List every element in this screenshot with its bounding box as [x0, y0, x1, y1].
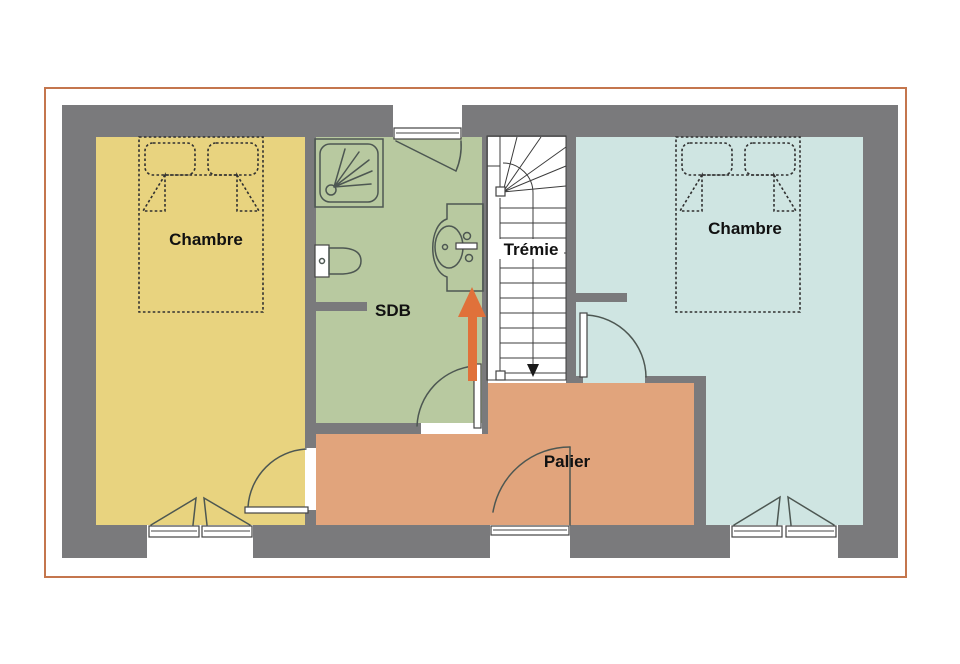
bedroom-left-floor: [96, 137, 305, 525]
wall-stairs-bedroomright: [566, 135, 576, 383]
stair-newel-bottom: [496, 371, 505, 380]
label-bathroom: SDB: [375, 301, 411, 320]
floor-plan-page: Chambre Chambre SDB Trémie Palier: [0, 0, 960, 664]
landing-floor-upper: [488, 383, 694, 434]
door-leaf: [580, 313, 587, 377]
bathroom-floor: [316, 137, 482, 423]
label-bedroom-right: Chambre: [708, 219, 782, 238]
wall-landing-bedroomright: [694, 376, 706, 525]
landing-floor: [316, 434, 694, 525]
floor-plan-drawing: Chambre Chambre SDB Trémie Palier: [0, 0, 960, 664]
label-bedroom-left: Chambre: [169, 230, 243, 249]
stair-newel-top: [496, 187, 505, 196]
wall-bedroomright-stub: [576, 293, 627, 302]
wall-bathroom-stub: [316, 302, 367, 311]
door-leaf: [245, 507, 308, 513]
label-stairwell: Trémie: [504, 240, 559, 259]
label-landing: Palier: [544, 452, 591, 471]
toilet-tank: [315, 245, 329, 277]
wall-bathroom-bottom: [305, 423, 421, 434]
sink-tap: [456, 243, 477, 249]
